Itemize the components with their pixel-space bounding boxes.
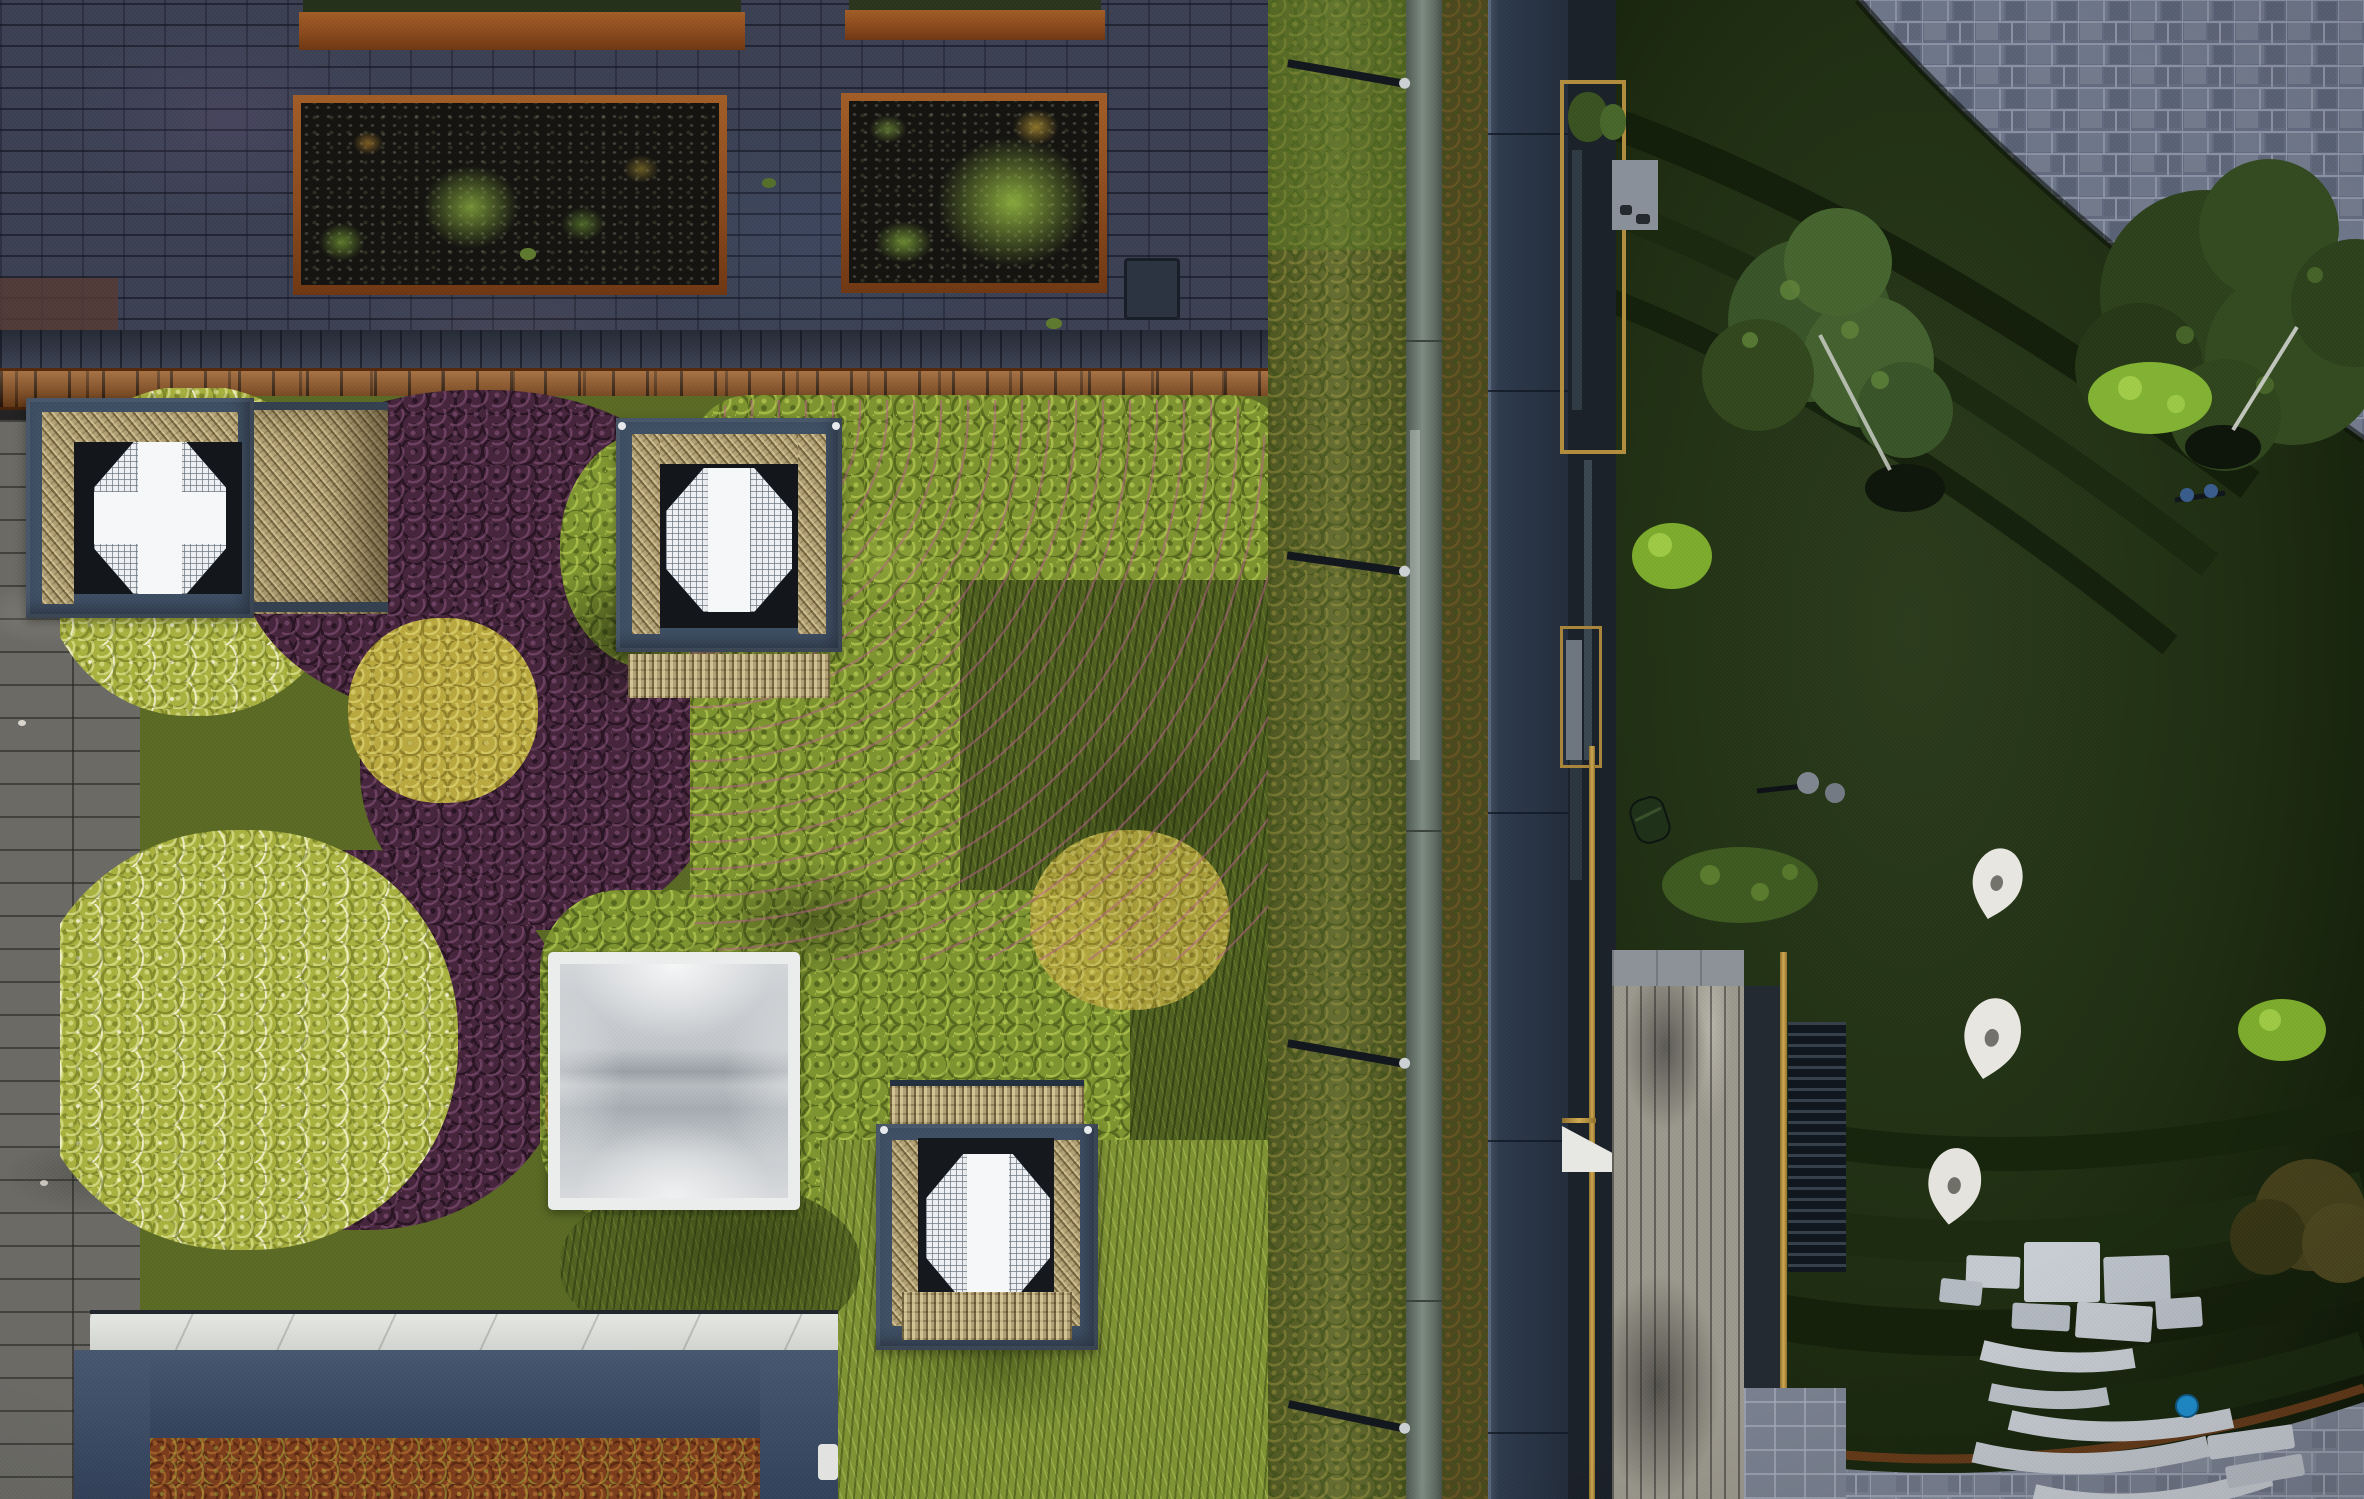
frame-fastener bbox=[832, 422, 840, 430]
planter-top-right-face bbox=[845, 10, 1105, 40]
soldier-brick-course bbox=[0, 330, 1268, 370]
skylight-dome bbox=[560, 964, 788, 1198]
cube-frame bbox=[616, 418, 842, 652]
panel-edge bbox=[254, 602, 388, 612]
wicker-side-panel bbox=[254, 402, 388, 614]
glass-reflection bbox=[1410, 430, 1420, 760]
wood-balcony-deck bbox=[1612, 986, 1744, 1499]
vent-white-bar bbox=[967, 1151, 1009, 1305]
grass-tuft bbox=[319, 223, 365, 261]
panel-seam bbox=[1488, 1140, 1568, 1142]
yellow-shrub-mass bbox=[60, 830, 458, 1250]
skylight bbox=[548, 952, 800, 1210]
glass-balustrade bbox=[1406, 0, 1442, 1499]
access-hatch bbox=[1124, 258, 1180, 320]
golden-fern-patch bbox=[348, 618, 538, 803]
aerial-photo-rooftop-garden bbox=[0, 0, 2364, 1499]
fallen-petal bbox=[18, 720, 26, 726]
wicker-inner-band bbox=[632, 434, 660, 634]
raised-bed-left bbox=[293, 95, 727, 295]
vent-grille-octagon bbox=[666, 468, 792, 612]
planter-top-left-face bbox=[299, 12, 745, 50]
tree-rootball bbox=[1865, 464, 1945, 512]
sedum-border-right bbox=[1442, 0, 1488, 1499]
grass-tuft bbox=[875, 221, 933, 263]
moss-tuft bbox=[353, 131, 383, 155]
cube-frame bbox=[26, 398, 254, 618]
wicker-inner-band bbox=[798, 434, 826, 634]
panel-seam bbox=[1488, 1432, 1568, 1434]
louvered-screen bbox=[1788, 1022, 1846, 1272]
vent-cube-left bbox=[20, 396, 372, 622]
gold-trim-line bbox=[1562, 1118, 1596, 1123]
paving-weed bbox=[1046, 318, 1062, 329]
raised-bed-right bbox=[841, 93, 1107, 293]
pavilion-sedum-roof bbox=[150, 1438, 760, 1499]
band-highlight bbox=[1488, 0, 1491, 1499]
panel-seam bbox=[1488, 812, 1568, 814]
frame-fastener bbox=[880, 1126, 888, 1134]
tree-rootball bbox=[2185, 425, 2261, 469]
roof-edge-band bbox=[1488, 0, 1568, 1499]
frame-fastener bbox=[618, 422, 626, 430]
glass-joint bbox=[1406, 1300, 1442, 1302]
balcony-slab bbox=[1612, 160, 1658, 230]
sedum-border-green-top bbox=[1268, 0, 1406, 250]
panel-seam bbox=[1488, 133, 1568, 135]
cube-frame bbox=[876, 1124, 1098, 1350]
panel-seam bbox=[1488, 390, 1568, 392]
moss-tuft bbox=[1013, 109, 1059, 145]
pavilion-bracket bbox=[818, 1444, 838, 1480]
grass-tuft bbox=[423, 165, 519, 249]
tree-anchor bbox=[2204, 484, 2218, 498]
panel-edge bbox=[254, 402, 388, 410]
glass-joint bbox=[1406, 340, 1442, 342]
balcony-furniture bbox=[1620, 205, 1632, 215]
grass-tuft bbox=[937, 137, 1089, 267]
glass-joint bbox=[1406, 830, 1442, 832]
vent-white-bar bbox=[91, 492, 228, 544]
balcony-edge-slab bbox=[1612, 950, 1744, 986]
paving-weed bbox=[520, 248, 536, 260]
balcony-slab bbox=[1566, 640, 1582, 760]
paving-weed bbox=[762, 178, 776, 188]
grass-tuft bbox=[561, 207, 605, 241]
shrub-bed bbox=[1662, 847, 1818, 923]
vent-cube-bottom bbox=[874, 1078, 1100, 1350]
balcony-furniture bbox=[1636, 214, 1650, 224]
vent-white-bar bbox=[708, 465, 751, 615]
wicker-fringe bbox=[628, 654, 830, 698]
pavilion-parapet bbox=[74, 1350, 838, 1438]
balcony-corner-paving bbox=[1744, 1388, 1846, 1499]
wicker-inner-band bbox=[632, 434, 826, 464]
fallen-petal bbox=[40, 1180, 48, 1186]
vent-cube-center bbox=[616, 416, 848, 698]
blue-object bbox=[2176, 1395, 2198, 1417]
frame-fastener bbox=[1084, 1126, 1092, 1134]
wicker-fringe bbox=[902, 1292, 1072, 1340]
wicker-top-band bbox=[890, 1086, 1084, 1124]
tree-anchor bbox=[2180, 488, 2194, 502]
pavilion-parapet-left bbox=[74, 1350, 150, 1499]
moss-tuft bbox=[623, 155, 659, 183]
balcony-planter bbox=[1600, 104, 1626, 140]
wicker-inner-band bbox=[42, 412, 74, 604]
grass-tuft bbox=[869, 115, 907, 143]
